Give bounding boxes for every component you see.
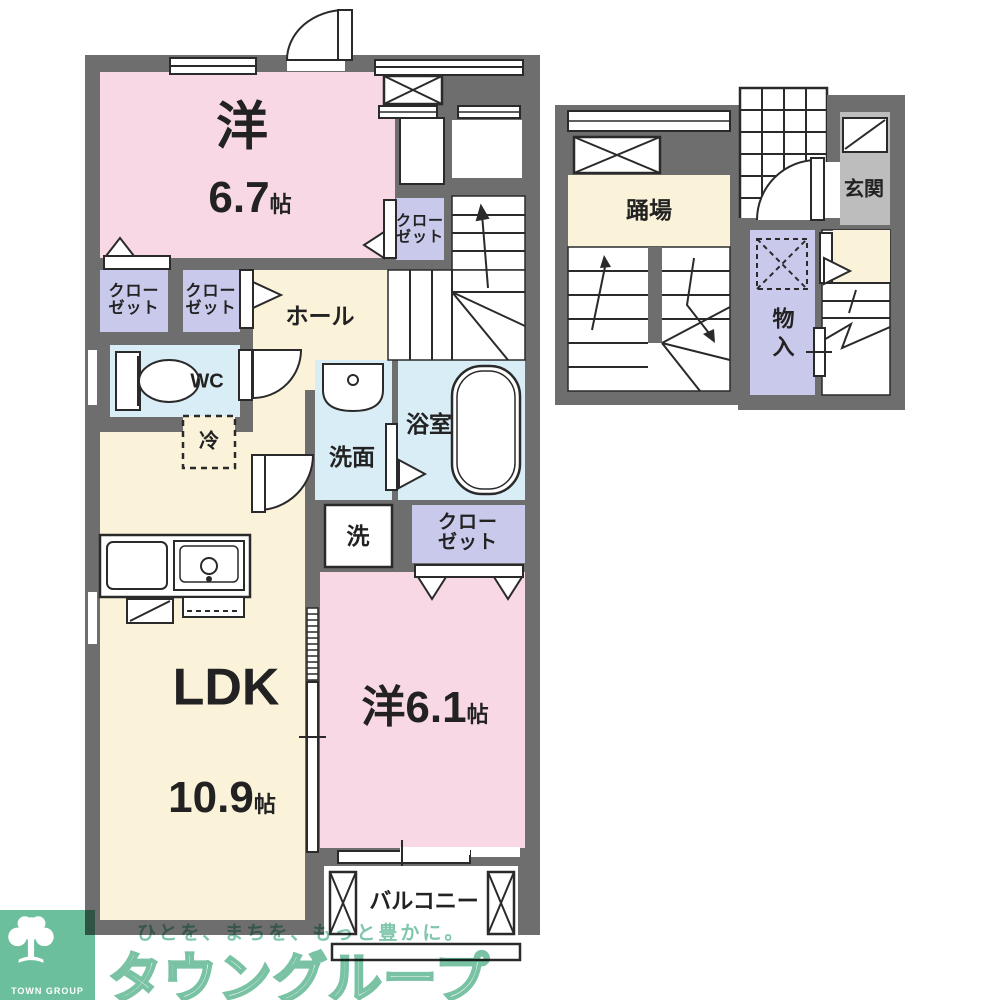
stove-icon: [107, 542, 167, 589]
closet-left-1-label: クローゼット: [107, 284, 161, 318]
bedroom-a-size: 6.7帖: [208, 175, 291, 221]
bathtub-icon: [452, 366, 520, 494]
ldk-name: LDK: [173, 661, 280, 716]
ldk-size: 10.9帖: [168, 775, 276, 821]
closet-b-label: クローゼット: [436, 513, 501, 553]
bedroom-b-label: 洋6.1帖: [361, 685, 488, 731]
washbasin-icon: [323, 364, 383, 411]
main-unit: [85, 10, 540, 960]
logo-caption: TOWN GROUP: [11, 986, 84, 996]
bedroom-a-area: 6.7: [208, 173, 269, 222]
closet-mid-label: クローゼット: [395, 213, 446, 245]
hall-label: ホール: [286, 304, 355, 328]
stairwell-stairs: [568, 247, 730, 391]
unit-top-door: [287, 10, 352, 71]
bedroom-b-area-unit: 帖: [467, 702, 489, 727]
storage-label: 物入: [770, 307, 793, 363]
landing-label: 踊場: [626, 198, 672, 222]
wc-window: [88, 350, 97, 405]
tree-icon: [0, 910, 62, 972]
ldk-area-unit: 帖: [254, 792, 276, 817]
entrance-block: [738, 88, 905, 410]
balcony-label: バルコニー: [369, 889, 479, 912]
wc-label: WC: [190, 372, 223, 393]
floor-plan-drawing: [0, 0, 1000, 1000]
toilet-tank-icon: [116, 352, 140, 410]
washer-label: 洗: [347, 524, 370, 548]
floor-plan-page: 洋 6.7帖 クローゼット クローゼット クローゼット クローゼット ホール W…: [0, 0, 1000, 1000]
closet-left-2-label: クローゼット: [184, 284, 238, 318]
ldk-area: 10.9: [168, 773, 254, 822]
kitchen-window: [88, 592, 97, 644]
washroom-label: 洗面: [329, 445, 375, 469]
bedroom-a-name: 洋: [216, 101, 268, 156]
bedroom-b-name: 洋: [361, 683, 405, 732]
stairwell-block: [555, 105, 745, 405]
brand-company-watermark: タウングループ: [108, 934, 490, 1000]
bathroom-label: 浴室: [406, 412, 452, 436]
entrance-label: 玄関: [844, 180, 884, 201]
town-group-logo: TOWN GROUP: [0, 910, 95, 1000]
bedroom-a-area-unit: 帖: [270, 192, 292, 217]
refrigerator-label: 冷: [199, 432, 219, 453]
bedroom-b-area: 6.1: [405, 683, 466, 732]
